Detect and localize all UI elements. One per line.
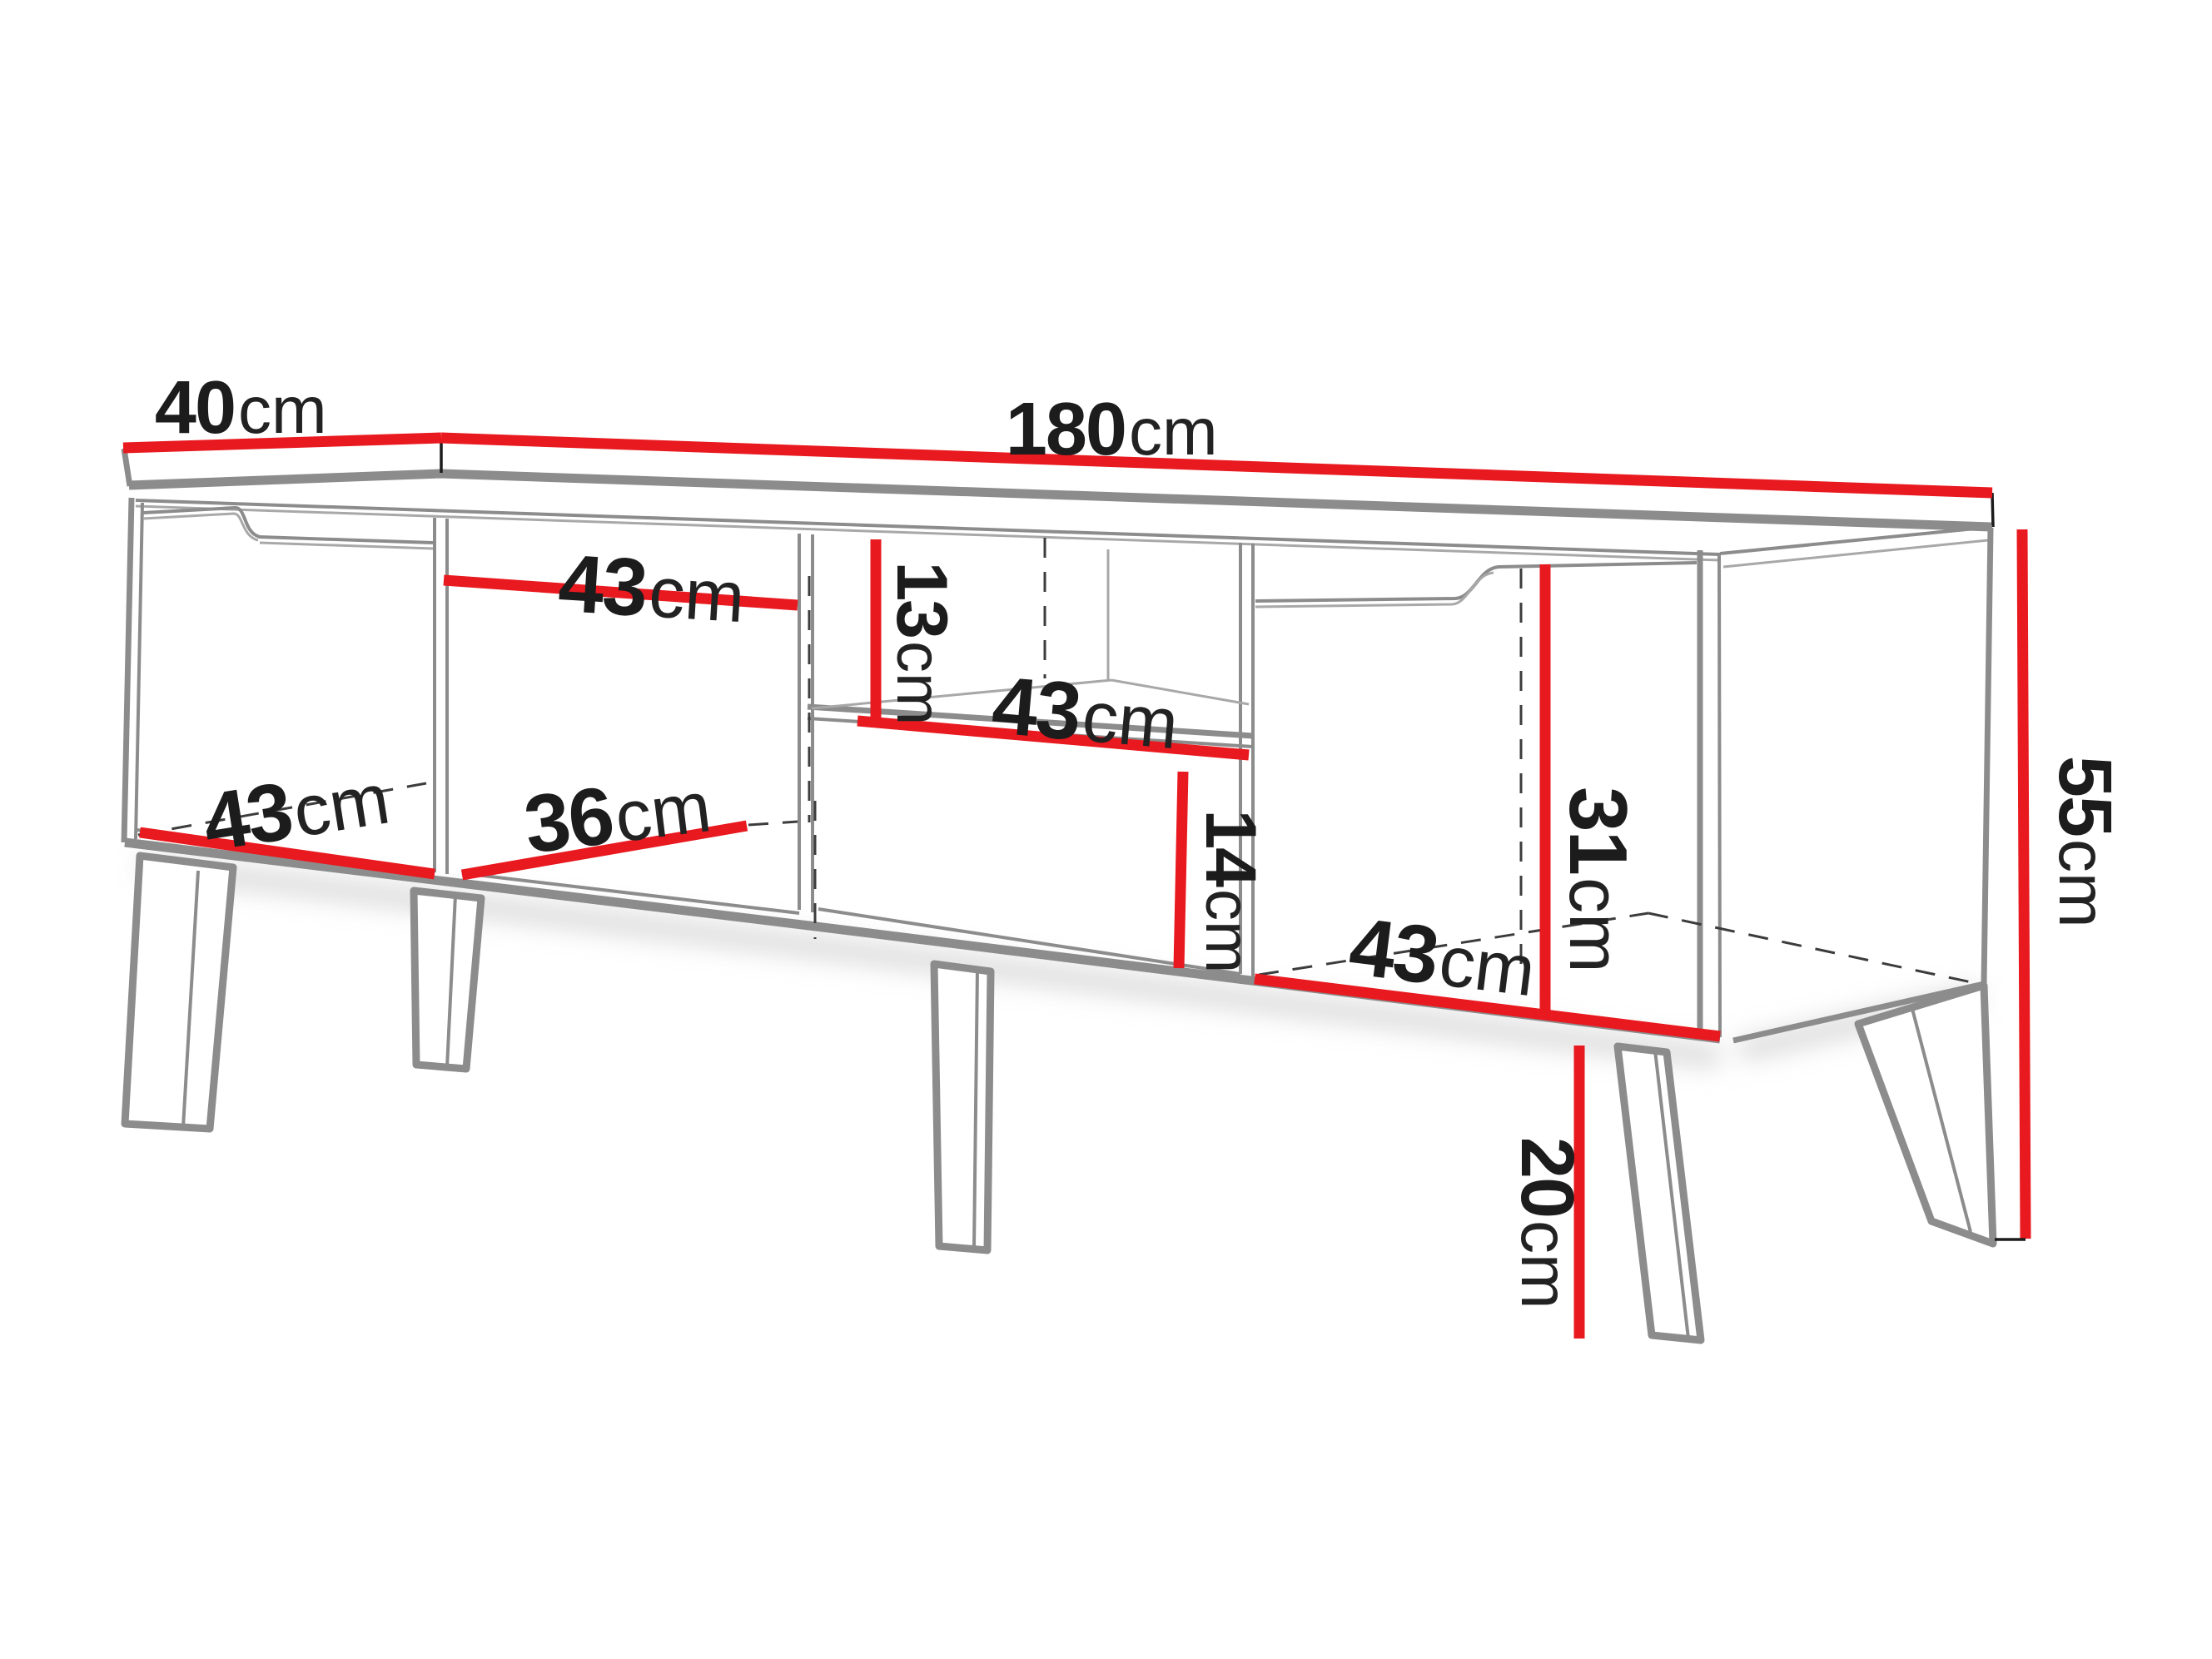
right-door <box>1255 563 1697 607</box>
label-top-width: 180 cm <box>1006 388 1218 471</box>
svg-text:40: 40 <box>155 366 235 450</box>
svg-text:13: 13 <box>882 561 962 638</box>
svg-text:43: 43 <box>196 764 297 868</box>
dimension-diagram: 40 cm 180 cm 43 cm 13 cm 43 cm 43 cm 36 … <box>0 0 2212 1659</box>
svg-text:55: 55 <box>2043 756 2126 836</box>
label-leg-height: 20 cm <box>1505 1137 1588 1309</box>
front-middle-leg <box>934 964 991 1250</box>
label-middle-shelf-width: 43 cm <box>989 658 1182 766</box>
front-left-leg <box>125 856 233 1129</box>
svg-text:cm: cm <box>1079 677 1181 765</box>
svg-text:20: 20 <box>1505 1137 1588 1217</box>
body-height-line <box>2022 529 2026 1239</box>
dimension-labels: 40 cm 180 cm 43 cm 13 cm 43 cm 43 cm 36 … <box>155 366 2126 1309</box>
svg-text:cm: cm <box>883 641 954 725</box>
label-left-compartment-depth: 43 cm <box>196 749 395 869</box>
svg-text:cm: cm <box>1192 889 1263 973</box>
front-right-leg <box>1618 1046 1701 1340</box>
svg-text:cm: cm <box>647 552 747 638</box>
label-right-compartment-height: 31 cm <box>1553 787 1644 973</box>
svg-text:cm: cm <box>1508 1220 1582 1309</box>
svg-text:43: 43 <box>1345 900 1443 1001</box>
label-body-height: 55 cm <box>2043 756 2126 928</box>
svg-text:180: 180 <box>1006 388 1126 471</box>
svg-text:cm: cm <box>1129 395 1218 469</box>
label-upper-niche-height: 13 cm <box>882 561 962 725</box>
svg-text:31: 31 <box>1553 787 1644 874</box>
label-left-opening-width: 43 cm <box>556 537 748 639</box>
svg-text:cm: cm <box>288 758 395 852</box>
rear-right-leg <box>1858 986 1993 1244</box>
svg-text:cm: cm <box>2045 839 2120 928</box>
svg-text:14: 14 <box>1191 809 1270 887</box>
svg-text:36: 36 <box>519 769 618 871</box>
svg-text:43: 43 <box>556 537 649 633</box>
svg-text:cm: cm <box>238 373 327 447</box>
legs <box>125 856 1993 1340</box>
svg-text:cm: cm <box>1554 877 1634 973</box>
rear-left-leg <box>414 891 481 1069</box>
label-top-depth: 40 cm <box>155 366 327 450</box>
svg-text:cm: cm <box>1435 921 1539 1011</box>
right-side-panel <box>1720 527 1992 1041</box>
svg-text:43: 43 <box>989 658 1084 757</box>
svg-text:cm: cm <box>611 767 715 857</box>
lower-niche-height-line <box>1179 772 1183 968</box>
label-lower-niche-height: 14 cm <box>1191 809 1270 973</box>
